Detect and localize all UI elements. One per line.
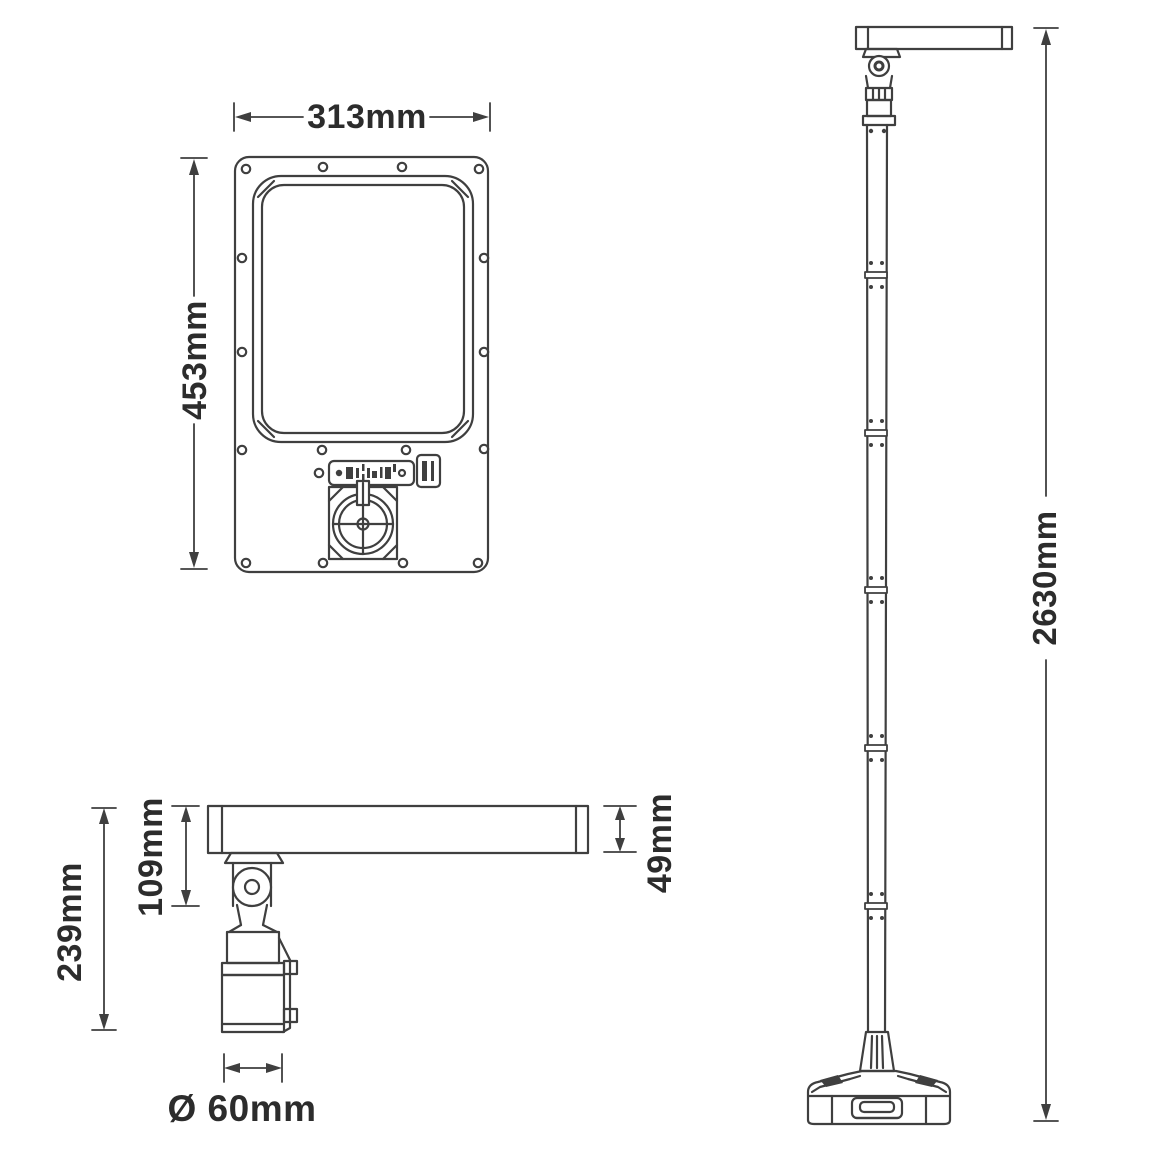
dimension-label-front-height: 453mm xyxy=(175,285,215,435)
side-overall-height-dimension xyxy=(92,808,116,1030)
dimension-label-side-overall-height: 239mm xyxy=(50,847,90,997)
dimension-label-pole-height: 2630mm xyxy=(1025,493,1065,663)
side-view xyxy=(92,806,636,1082)
pole-base xyxy=(808,1032,950,1124)
pole-pivot-joint xyxy=(869,56,889,76)
dimension-label-head-thickness: 49mm xyxy=(640,783,680,903)
dimension-label-front-width: 313mm xyxy=(305,99,429,135)
side-pivot-height-dimension xyxy=(172,806,199,906)
pole-joint xyxy=(865,261,887,289)
front-view xyxy=(181,103,490,572)
side-bracket xyxy=(222,853,297,1032)
pole-head xyxy=(856,27,1012,133)
side-head xyxy=(208,806,588,853)
pole-shaft xyxy=(865,125,887,1032)
dimension-label-side-pivot-height: 109mm xyxy=(131,782,171,932)
front-body xyxy=(235,157,488,572)
product-label xyxy=(329,455,440,487)
floodlight-dimension-drawing xyxy=(0,0,1170,1156)
technical-drawing-canvas: 313mm 453mm 239mm 109mm 49mm Ø 60mm 2630… xyxy=(0,0,1170,1156)
pole-view xyxy=(808,27,1058,1124)
front-lens-frame-outer xyxy=(253,176,473,442)
front-lens-frame-inner xyxy=(262,185,464,433)
fan-detail xyxy=(329,481,397,559)
head-thickness-dimension xyxy=(604,806,636,852)
mount-diameter-dimension xyxy=(224,1054,282,1082)
dimension-label-mount-diameter: Ø 60mm xyxy=(147,1088,337,1130)
pivot-joint xyxy=(233,868,271,906)
front-outer-housing xyxy=(235,157,488,572)
